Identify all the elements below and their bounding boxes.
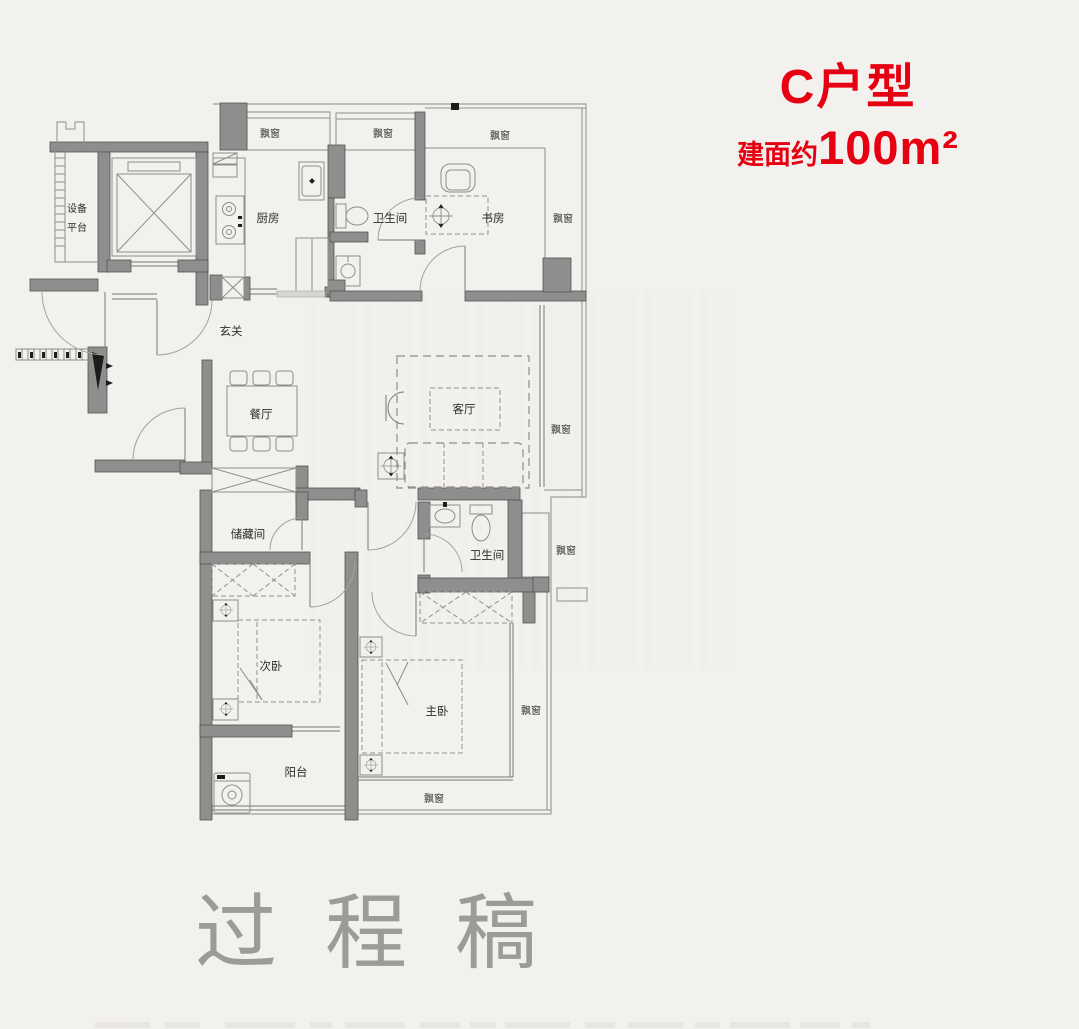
room-label-dining: 餐厅 bbox=[250, 407, 273, 421]
balcony-fixtures bbox=[214, 773, 250, 813]
study-furniture bbox=[426, 164, 488, 234]
bay-window-label: 飘窗 bbox=[424, 792, 444, 805]
unit-title: C户型 bbox=[698, 62, 998, 114]
dimension-strip bbox=[16, 349, 90, 360]
bay-window-label: 飘窗 bbox=[373, 127, 393, 140]
bottom-cutoff-artifact bbox=[95, 1022, 870, 1028]
area-value: 100m² bbox=[818, 120, 959, 175]
elevator-shaft bbox=[112, 158, 196, 266]
area-prefix: 建面约 bbox=[737, 133, 818, 172]
room-label-master: 主卧 bbox=[426, 705, 449, 718]
area-line: 建面约100m² bbox=[698, 120, 998, 175]
room-label-foyer: 玄关 bbox=[220, 324, 243, 338]
room-label-bathroom2: 卫生间 bbox=[470, 548, 505, 562]
watermark-text: 过程稿 bbox=[160, 866, 620, 985]
bay-window-label: 飘窗 bbox=[521, 704, 541, 717]
room-label-study: 书房 bbox=[482, 212, 505, 225]
dining-furniture bbox=[212, 371, 297, 492]
bay-window-label: 飘窗 bbox=[556, 544, 576, 557]
floorplan-page: 设备 平台 飘窗 飘窗 飘窗 厨房 卫生间 书房 飘窗 玄关 餐厅 客厅 飘窗 … bbox=[0, 0, 1079, 1029]
bay-window-label: 飘窗 bbox=[551, 423, 571, 436]
faint-stripe-artifact bbox=[310, 290, 730, 670]
room-label-storage: 储藏间 bbox=[231, 527, 266, 541]
room-label-balcony: 阳台 bbox=[285, 765, 308, 779]
room-label-bathroom: 卫生间 bbox=[373, 211, 408, 225]
room-label-equipment-2: 平台 bbox=[67, 221, 87, 234]
room-label-bedroom2: 次卧 bbox=[260, 659, 283, 673]
bay-window-label: 飘窗 bbox=[553, 212, 573, 225]
bathroom-top-fixtures bbox=[336, 204, 368, 286]
room-label-living: 客厅 bbox=[453, 402, 476, 416]
room-label-equipment-1: 设备 bbox=[67, 202, 87, 215]
title-block: C户型 建面约100m² bbox=[698, 62, 998, 175]
bedroom2-furniture bbox=[212, 564, 320, 720]
kitchen-fixtures bbox=[213, 153, 328, 298]
bay-window-label: 飘窗 bbox=[490, 129, 510, 142]
room-label-kitchen: 厨房 bbox=[257, 212, 280, 225]
bay-window-label: 飘窗 bbox=[260, 127, 280, 140]
